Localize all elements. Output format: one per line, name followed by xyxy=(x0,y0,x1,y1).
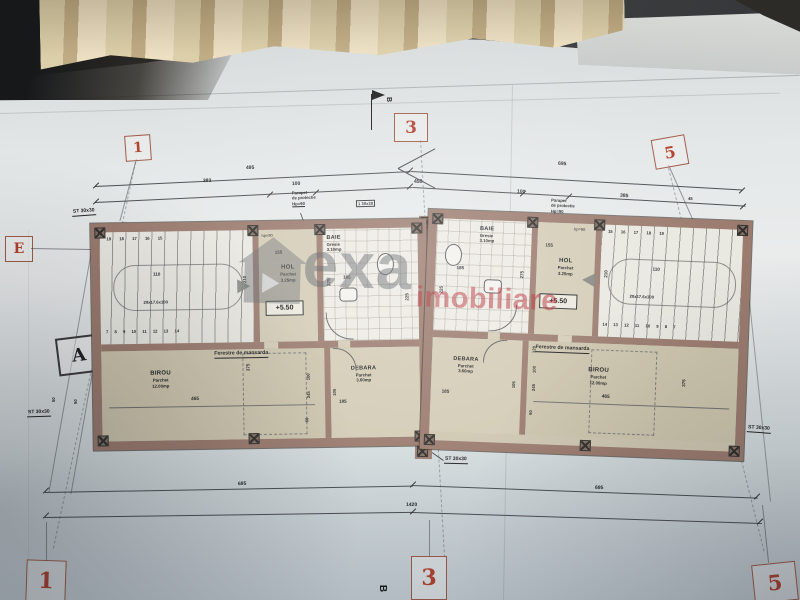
axis-marker-3-bottom: 3 xyxy=(411,556,447,600)
flag-icon xyxy=(372,90,385,100)
dim-245: 245 xyxy=(532,384,536,391)
stair-guide-line xyxy=(113,263,244,311)
marker-connector xyxy=(429,520,430,556)
column xyxy=(314,224,325,235)
dim-695-bottom-left: 695 xyxy=(238,482,246,487)
dim-210: 210 xyxy=(604,270,609,278)
dim-45: 45 xyxy=(688,197,693,201)
column-label: ST 30x30 xyxy=(444,457,468,464)
dim-375: 375 xyxy=(246,364,251,372)
column xyxy=(249,433,260,444)
dim-185: 185 xyxy=(343,276,351,281)
stair-spec: 20x17.6x100 xyxy=(143,300,168,305)
dim-375: 375 xyxy=(682,379,687,387)
room-area: 3.60mp xyxy=(339,377,389,383)
level-mark: +5.50 xyxy=(265,300,303,316)
column xyxy=(424,434,435,445)
axis-marker-e: E xyxy=(5,236,33,262)
dim-383: 383 xyxy=(203,179,212,184)
column xyxy=(247,225,258,236)
dim-60: 60 xyxy=(305,418,309,423)
left-apartment-unit: 19 18 17 16 15 7 8 9 10 11 12 13 14 20x1… xyxy=(90,218,430,450)
dim-385: 385 xyxy=(620,194,629,199)
column xyxy=(432,213,443,224)
dim-110: 110 xyxy=(153,273,160,278)
lintel-label: 1 30x20 xyxy=(356,200,375,208)
dim-1420: 1420 xyxy=(406,503,417,508)
section-letter-top: B xyxy=(385,97,392,102)
axis-marker-5-bottom: 5 xyxy=(751,561,799,600)
parapet-height: Hp=90 xyxy=(292,200,305,205)
parapet-note-right: Parapet de protectie Hp=90 xyxy=(551,198,575,215)
column xyxy=(594,219,605,230)
room-area: 12.00mp xyxy=(133,383,189,389)
right-apartment-unit: BAIE Gresie 3.10mp 185 275 225 hp=90 155… xyxy=(420,209,753,461)
dim-60: 60 xyxy=(529,410,533,415)
dim-225: 225 xyxy=(439,286,444,294)
dim-185: 185 xyxy=(339,400,347,405)
toilet-fixture xyxy=(377,253,394,275)
stair-tread-numbers: 19 18 17 16 15 xyxy=(106,236,162,242)
section-letter-bottom: B xyxy=(377,585,388,592)
level-mark: +5.50 xyxy=(539,293,578,309)
hp-note: hp=90 xyxy=(574,227,585,231)
dim-105: 105 xyxy=(333,389,337,396)
marker-connector xyxy=(46,522,47,560)
skylight-outline xyxy=(242,352,307,435)
dim-100: 100 xyxy=(292,182,301,187)
skylight-outline xyxy=(588,349,657,435)
room-area: 3.25mp xyxy=(261,277,315,283)
hol-left xyxy=(258,229,318,342)
stair-direction-arrow xyxy=(237,279,250,293)
room-label-hol: HOL Parchet 3.25mp xyxy=(261,264,315,283)
axis-marker-5-top: 5 xyxy=(651,134,690,169)
column xyxy=(411,222,422,233)
dim-100: 100 xyxy=(533,366,537,373)
dim-155: 155 xyxy=(275,251,283,256)
column-label: ST 30x30 xyxy=(27,410,51,418)
dim-155: 155 xyxy=(545,243,553,248)
dim-465: 465 xyxy=(601,396,609,401)
diag-dim: 50 xyxy=(52,397,56,402)
column xyxy=(737,225,748,236)
dim-275: 275 xyxy=(520,271,525,279)
sink-fixture xyxy=(484,279,503,294)
column xyxy=(94,227,105,238)
hp-note: hp=90 xyxy=(261,234,272,238)
column xyxy=(580,440,591,451)
dim-185: 185 xyxy=(456,266,464,271)
dim-100: 100 xyxy=(307,373,311,380)
axis-marker-1-bottom: 1 xyxy=(25,559,66,600)
dim-695-top: 695 xyxy=(558,162,567,167)
room-label-birou: BIROU Parchet 12.00mp xyxy=(133,370,189,389)
dim-100: 100 xyxy=(517,190,526,195)
axis-marker-3-top: 3 xyxy=(394,113,428,142)
stair-guide-line xyxy=(607,258,737,309)
dim-245: 245 xyxy=(307,391,311,398)
room-label-baie: BAIE Gresie 3.10mp xyxy=(326,234,366,252)
photo-of-floor-plan: 50 50 495 695 383 100 450 100 385 45 695… xyxy=(0,0,800,600)
sink-fixture xyxy=(339,287,357,301)
mansard-windows-label: Ferestre de mansarda xyxy=(214,351,268,359)
dim-695-bottom-right: 695 xyxy=(595,486,604,491)
room-label-birou: BIROU Parchet 12.00mp xyxy=(570,366,627,386)
column xyxy=(527,217,538,228)
dim-465: 465 xyxy=(191,398,199,403)
dim-495: 495 xyxy=(246,166,255,171)
stair-direction-arrow xyxy=(582,273,596,287)
dim-185: 185 xyxy=(442,390,450,395)
storage-right xyxy=(429,337,523,434)
dim-105: 105 xyxy=(512,381,516,388)
diag-dim: 50 xyxy=(74,399,78,404)
column xyxy=(728,446,739,457)
stair-spec: 20x17.6x100 xyxy=(629,295,654,300)
column xyxy=(98,435,109,446)
room-area: 3.10mp xyxy=(327,246,367,252)
dim-120: 120 xyxy=(532,346,536,353)
dim-225: 225 xyxy=(405,293,410,301)
room-label-baie: BAIE Gresie 3.10mp xyxy=(479,226,520,245)
axis-marker-1-top: 1 xyxy=(124,134,152,162)
parapet-note-left: Parapet de protectie Hp=90 xyxy=(292,190,316,207)
dim-275: 275 xyxy=(327,278,332,286)
dim-110: 110 xyxy=(652,268,659,273)
